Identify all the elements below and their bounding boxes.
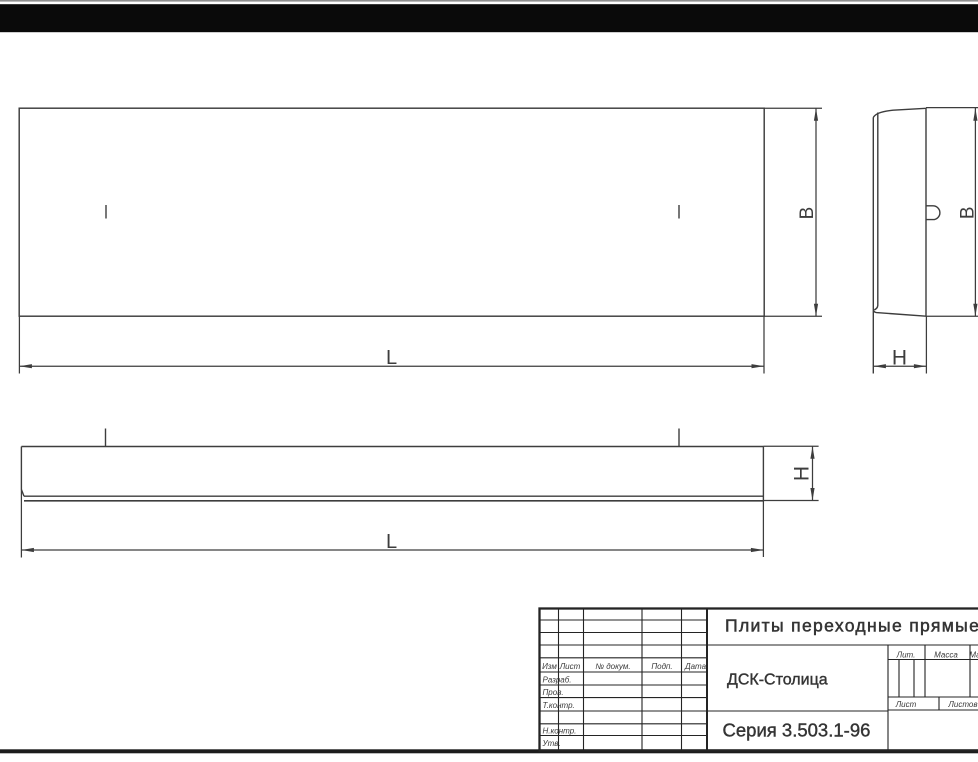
svg-text:Т.контр.: Т.контр. <box>543 701 575 710</box>
svg-text:Масштаб: Масштаб <box>969 650 978 659</box>
svg-text:ДСК-Столица: ДСК-Столица <box>727 671 828 688</box>
svg-text:L: L <box>386 531 397 553</box>
svg-text:Н.контр.: Н.контр. <box>543 727 577 736</box>
svg-text:H: H <box>790 466 813 481</box>
svg-text:L: L <box>386 347 397 369</box>
svg-text:H: H <box>892 347 907 370</box>
svg-text:Изм: Изм <box>542 662 557 671</box>
svg-text:Лист: Лист <box>559 662 581 671</box>
svg-text:Лист: Лист <box>895 700 917 709</box>
svg-text:Листов: Листов <box>947 700 977 709</box>
svg-text:В: В <box>958 206 978 219</box>
svg-text:Разраб.: Разраб. <box>543 676 572 685</box>
svg-text:Плиты переходные прямые: Плиты переходные прямые <box>725 615 978 635</box>
svg-text:Лит.: Лит. <box>896 650 916 659</box>
svg-text:№ докум.: № докум. <box>595 662 630 671</box>
svg-text:Масса: Масса <box>934 650 958 659</box>
svg-text:В: В <box>797 207 818 220</box>
svg-text:Подп.: Подп. <box>651 662 672 671</box>
svg-text:Дата: Дата <box>684 662 707 671</box>
svg-text:Серия 3.503.1-96: Серия 3.503.1-96 <box>723 720 871 741</box>
svg-text:Утв.: Утв. <box>542 739 561 748</box>
svg-text:Пров.: Пров. <box>543 688 564 697</box>
